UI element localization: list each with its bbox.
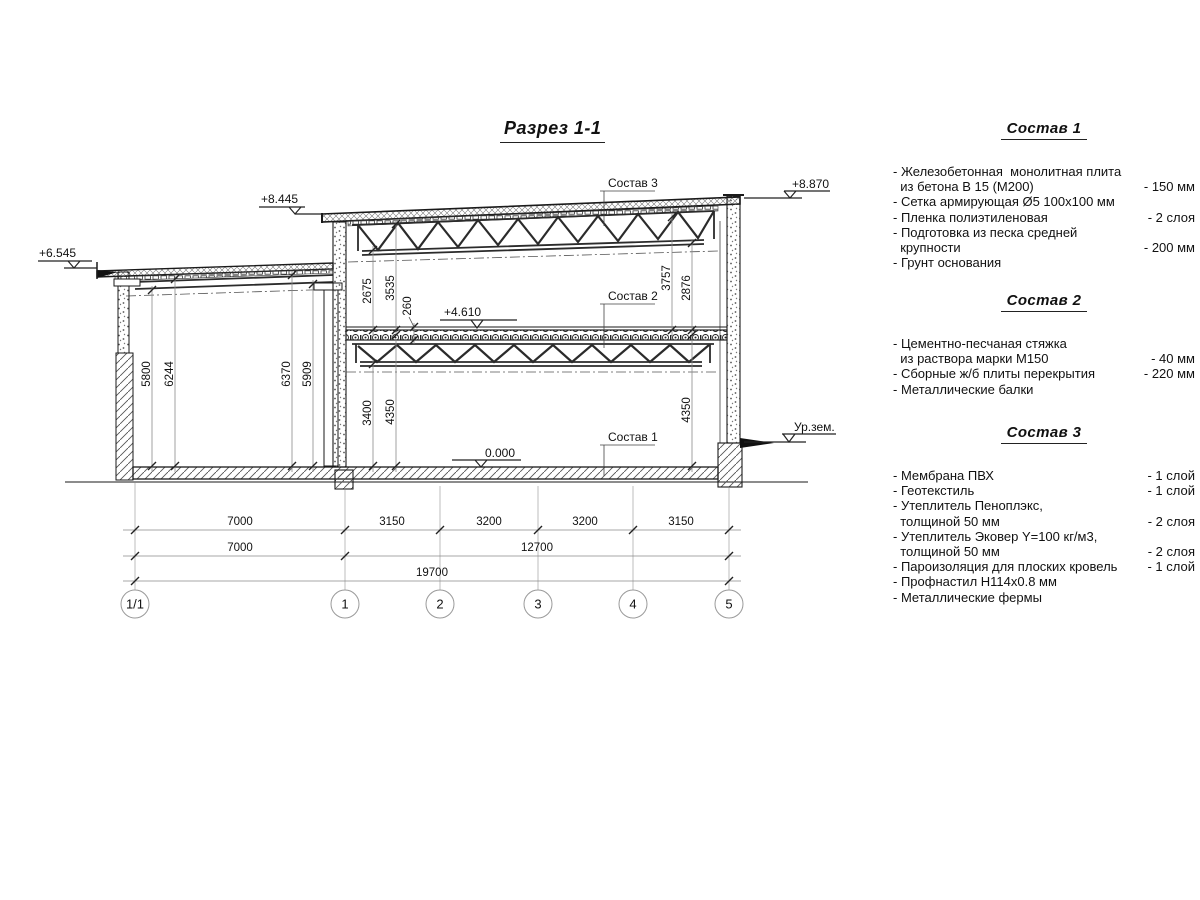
svg-text:6244: 6244 bbox=[164, 361, 176, 387]
composition-leaders: Состав 3 Состав 2 Состав 1 bbox=[600, 176, 658, 476]
section-drawing-sheet: Разрез 1-1 bbox=[0, 0, 1200, 900]
svg-text:4350: 4350 bbox=[681, 397, 693, 423]
elevation-annex-roof: +6.545 bbox=[38, 246, 97, 268]
svg-text:Состав 1: Состав 1 bbox=[608, 430, 658, 444]
svg-text:+4.610: +4.610 bbox=[444, 305, 481, 319]
composition-block-2: Состав 2 - Цементно-песчаная стяжка из р… bbox=[893, 292, 1195, 397]
annex-left-capital bbox=[114, 279, 140, 286]
axis1-footing bbox=[335, 470, 353, 489]
axis-bubble-1-1: 1/1 bbox=[126, 597, 144, 612]
svg-text:+8.445: +8.445 bbox=[261, 192, 298, 206]
composition-3-title: Состав 3 bbox=[893, 424, 1195, 444]
svg-text:3150: 3150 bbox=[379, 516, 405, 528]
composition-item: - Цементно-песчаная стяжка из раствора м… bbox=[893, 336, 1195, 366]
svg-text:3200: 3200 bbox=[572, 516, 598, 528]
axis-bubble-4: 4 bbox=[629, 597, 636, 612]
svg-text:7000: 7000 bbox=[227, 542, 253, 554]
composition-item: - Утеплитель Пеноплэкс, толщиной 50 мм -… bbox=[893, 498, 1195, 528]
dimension-row-3: 19700 bbox=[123, 567, 741, 585]
svg-text:19700: 19700 bbox=[416, 567, 448, 579]
dimension-row-1: 7000 3150 3200 3200 3150 bbox=[123, 516, 741, 534]
elevation-zero: 0.000 bbox=[452, 446, 521, 467]
svg-text:2876: 2876 bbox=[681, 275, 693, 301]
svg-text:5800: 5800 bbox=[141, 361, 153, 387]
right-ledge bbox=[740, 438, 774, 448]
middle-floor bbox=[346, 327, 727, 340]
elevation-main-roof: +8.445 bbox=[259, 192, 322, 214]
elevation-ground-level: Ур.зем. bbox=[744, 420, 836, 442]
elevation-mid-floor: +4.610 bbox=[440, 305, 517, 328]
composition-item: - Сетка армирующая Ø5 100х100 мм bbox=[893, 194, 1195, 209]
composition-item: - Грунт основания bbox=[893, 255, 1195, 270]
composition-item: - Профнастил Н114х0.8 мм bbox=[893, 574, 1195, 589]
composition-item: - Утеплитель Эковер Y=100 кг/м3, толщино… bbox=[893, 529, 1195, 559]
floor-truss bbox=[346, 344, 718, 372]
composition-item: - Металлические балки bbox=[893, 382, 1195, 397]
svg-text:5909: 5909 bbox=[302, 361, 314, 387]
right-foundation bbox=[718, 443, 742, 487]
svg-text:4350: 4350 bbox=[385, 399, 397, 425]
svg-text:3200: 3200 bbox=[476, 516, 502, 528]
svg-text:12700: 12700 bbox=[521, 542, 553, 554]
composition-1-title: Состав 1 bbox=[893, 120, 1195, 140]
ground-floor-slab bbox=[133, 467, 718, 479]
annex-beam-centerline bbox=[126, 289, 340, 296]
svg-text:Состав 3: Состав 3 bbox=[608, 176, 658, 190]
main-section bbox=[65, 195, 808, 489]
svg-text:3757: 3757 bbox=[661, 265, 673, 291]
axis-bubble-2: 2 bbox=[436, 597, 443, 612]
svg-text:0.000: 0.000 bbox=[485, 446, 515, 460]
composition-item: - Сборные ж/б плиты перекрытия - 220 мм bbox=[893, 366, 1195, 381]
svg-text:7000: 7000 bbox=[227, 516, 253, 528]
composition-2-title: Состав 2 bbox=[893, 292, 1195, 312]
composition-item: - Металлические фермы bbox=[893, 590, 1195, 605]
grid-bubbles: 1/1 1 2 3 4 5 bbox=[121, 590, 743, 618]
composition-item: - Пароизоляция для плоских кровель - 1 с… bbox=[893, 559, 1195, 574]
composition-item: - Геотекстиль - 1 слой bbox=[893, 483, 1195, 498]
svg-text:Ур.зем.: Ур.зем. bbox=[794, 420, 835, 434]
composition-block-1: Состав 1 - Железобетонная монолитная пли… bbox=[893, 120, 1195, 270]
svg-text:3150: 3150 bbox=[668, 516, 694, 528]
svg-text:+6.545: +6.545 bbox=[39, 246, 76, 260]
svg-text:2675: 2675 bbox=[362, 278, 374, 304]
composition-item: - Мембрана ПВХ - 1 слой bbox=[893, 468, 1195, 483]
svg-text:Состав 2: Состав 2 bbox=[608, 289, 658, 303]
composition-item: - Подготовка из песка средней крупности … bbox=[893, 225, 1195, 255]
composition-block-3: Состав 3 - Мембрана ПВХ - 1 слой - Геоте… bbox=[893, 424, 1195, 605]
svg-text:3400: 3400 bbox=[362, 400, 374, 426]
axis-bubble-3: 3 bbox=[534, 597, 541, 612]
svg-text:+8.870: +8.870 bbox=[792, 177, 829, 191]
svg-text:3535: 3535 bbox=[385, 275, 397, 301]
axis-bubble-1: 1 bbox=[341, 597, 348, 612]
svg-text:6370: 6370 bbox=[281, 361, 293, 387]
elevation-parapet: +8.870 bbox=[744, 177, 830, 198]
dimension-row-2: 7000 12700 bbox=[123, 542, 741, 560]
composition-item: - Пленка полиэтиленовая - 2 слоя bbox=[893, 210, 1195, 225]
composition-item: - Железобетонная монолитная плита из бет… bbox=[893, 164, 1195, 194]
main-left-wall bbox=[333, 222, 346, 467]
axis-bubble-5: 5 bbox=[725, 597, 732, 612]
annex-left-plinth bbox=[116, 353, 133, 480]
bottom-dimensions: 7000 3150 3200 3200 3150 7000 12700 1970… bbox=[121, 483, 743, 618]
svg-text:260: 260 bbox=[402, 296, 414, 315]
main-right-wall bbox=[727, 196, 740, 443]
